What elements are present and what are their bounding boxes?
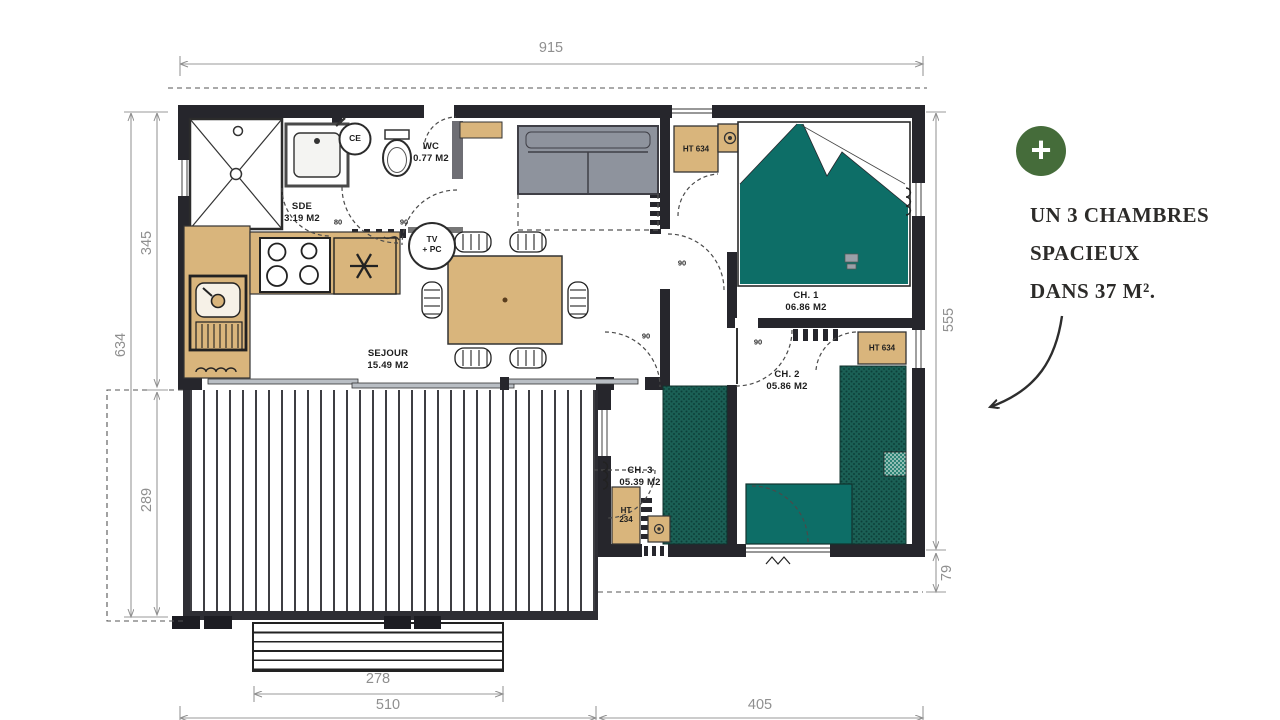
room-name: CH. 3 <box>619 465 660 477</box>
room-label-sde: SDE 3.19 M2 <box>284 201 320 225</box>
annotation-text: UN 3 CHAMBRES SPACIEUX DANS 37 M². <box>1030 196 1270 310</box>
door-width-ch2: 90 <box>754 338 762 347</box>
annotation-line-2: SPACIEUX <box>1030 234 1270 272</box>
room-name: CH. 2 <box>766 369 807 381</box>
room-name: SDE <box>284 201 320 213</box>
bathroom-fixtures <box>190 118 502 229</box>
bedrooms-2-3 <box>612 332 906 544</box>
plus-icon: + <box>1016 126 1066 176</box>
terrace-deck <box>183 390 598 620</box>
room-label-sejour: SEJOUR 15.49 M2 <box>367 348 408 372</box>
room-label-ch2: CH. 2 05.86 M2 <box>766 369 807 393</box>
shower-tray <box>190 119 282 229</box>
single-bed <box>663 386 727 544</box>
door-width-wc: 90 <box>400 218 408 227</box>
door-width-hall: 90 <box>678 259 686 268</box>
dim-left-lower: 289 <box>139 488 155 512</box>
double-bed <box>738 122 910 286</box>
nightstand <box>648 516 670 542</box>
room-area: 06.86 M2 <box>785 302 826 314</box>
nightstand <box>718 124 742 152</box>
shelf <box>460 122 502 138</box>
tv-pc-label: TV + PC <box>422 235 441 255</box>
cabinet-label-ht634-b: HT 634 <box>869 343 895 352</box>
dim-width-total: 915 <box>539 40 563 56</box>
dim-steps-width: 278 <box>366 671 390 687</box>
bedroom-1 <box>674 122 910 286</box>
pc-label: + PC <box>422 245 441 255</box>
sofa <box>518 126 658 230</box>
room-area: 05.86 M2 <box>766 381 807 393</box>
room-label-ch3: CH. 3 05.39 M2 <box>619 465 660 489</box>
room-area: 0.77 M2 <box>413 153 449 165</box>
dim-bottom-right: 405 <box>748 697 772 713</box>
dim-right-lower: 79 <box>939 565 955 581</box>
kitchen-sink <box>190 276 246 350</box>
annotation-arrow <box>990 316 1062 407</box>
dim-left-upper: 345 <box>139 231 155 255</box>
cabinet-label-ht234: HT 234 <box>619 506 632 524</box>
toilet <box>383 140 411 176</box>
room-name: WC <box>413 141 449 153</box>
fridge <box>334 238 396 294</box>
room-area: 3.19 M2 <box>284 213 320 225</box>
stove <box>260 238 330 292</box>
annotation-line-1: UN 3 CHAMBRES <box>1030 196 1270 234</box>
fridge-snowflake-icon <box>350 254 378 278</box>
terrace-steps <box>252 622 504 672</box>
single-bed <box>746 484 852 544</box>
dining <box>384 223 588 368</box>
dining-table <box>448 256 562 344</box>
room-area: 05.39 M2 <box>619 477 660 489</box>
dimension-lines <box>124 56 946 720</box>
dim-left-total: 634 <box>113 333 129 357</box>
room-name: SEJOUR <box>367 348 408 360</box>
dim-right-main: 555 <box>941 308 957 332</box>
room-label-wc: WC 0.77 M2 <box>413 141 449 165</box>
annotation-line-3: DANS 37 M². <box>1030 272 1270 310</box>
door-width-sde: 80 <box>334 218 342 227</box>
water-heater-label: CE <box>349 134 361 144</box>
single-bed <box>840 366 906 544</box>
nightstand <box>868 124 894 152</box>
room-label-ch1: CH. 1 06.86 M2 <box>785 290 826 314</box>
floor-plan-canvas: 915 345 634 289 555 79 278 510 405 SDE 3… <box>0 0 1280 720</box>
washbasin <box>286 124 348 186</box>
cabinet-label-ht634-a: HT 634 <box>683 144 709 153</box>
dim-bottom-left: 510 <box>376 697 400 713</box>
room-area: 15.49 M2 <box>367 360 408 372</box>
room-name: CH. 1 <box>785 290 826 302</box>
door-width-ch3: 90 <box>642 332 650 341</box>
